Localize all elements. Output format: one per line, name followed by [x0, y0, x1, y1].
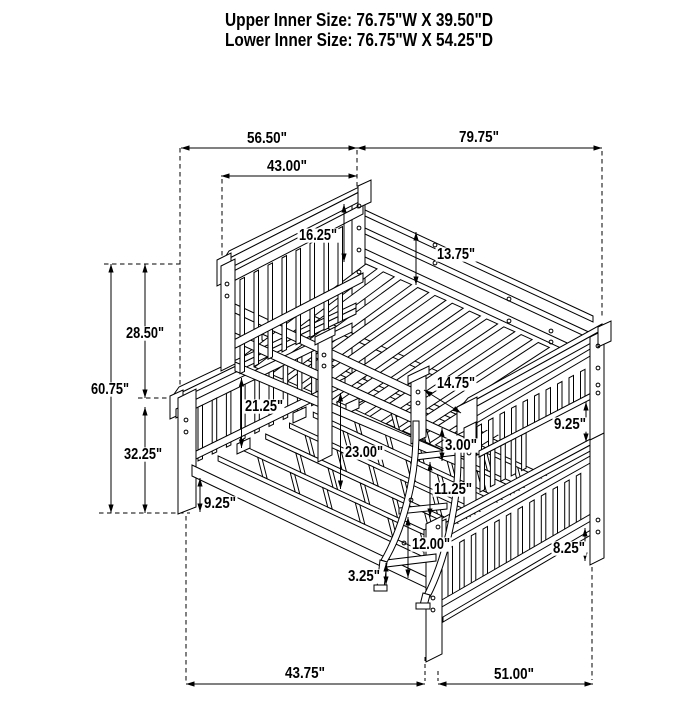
svg-text:56.50": 56.50": [247, 130, 287, 147]
svg-text:9.25": 9.25": [554, 416, 586, 433]
svg-text:Lower Inner Size: 76.75"W X 54: Lower Inner Size: 76.75"W X 54.25"D: [225, 30, 493, 50]
svg-text:12.00": 12.00": [412, 536, 450, 553]
svg-text:79.75": 79.75": [459, 129, 499, 146]
svg-text:43.75": 43.75": [285, 665, 325, 682]
svg-text:60.75": 60.75": [91, 381, 129, 398]
svg-text:3.00": 3.00": [445, 437, 477, 454]
svg-text:11.25": 11.25": [434, 481, 472, 498]
svg-text:32.25": 32.25": [124, 446, 162, 463]
svg-text:23.00": 23.00": [345, 444, 383, 461]
svg-text:3.25": 3.25": [348, 568, 380, 585]
svg-text:43.00": 43.00": [267, 158, 307, 175]
svg-text:14.75": 14.75": [437, 375, 475, 392]
svg-text:28.50": 28.50": [126, 325, 164, 342]
svg-text:Upper Inner Size: 76.75"W X 39: Upper Inner Size: 76.75"W X 39.50"D: [225, 10, 493, 30]
svg-text:8.25": 8.25": [553, 540, 585, 557]
svg-text:21.25": 21.25": [245, 398, 283, 415]
svg-text:51.00": 51.00": [494, 666, 534, 683]
svg-text:13.75": 13.75": [437, 246, 475, 263]
svg-text:16.25": 16.25": [299, 227, 337, 244]
svg-text:9.25": 9.25": [204, 495, 236, 512]
